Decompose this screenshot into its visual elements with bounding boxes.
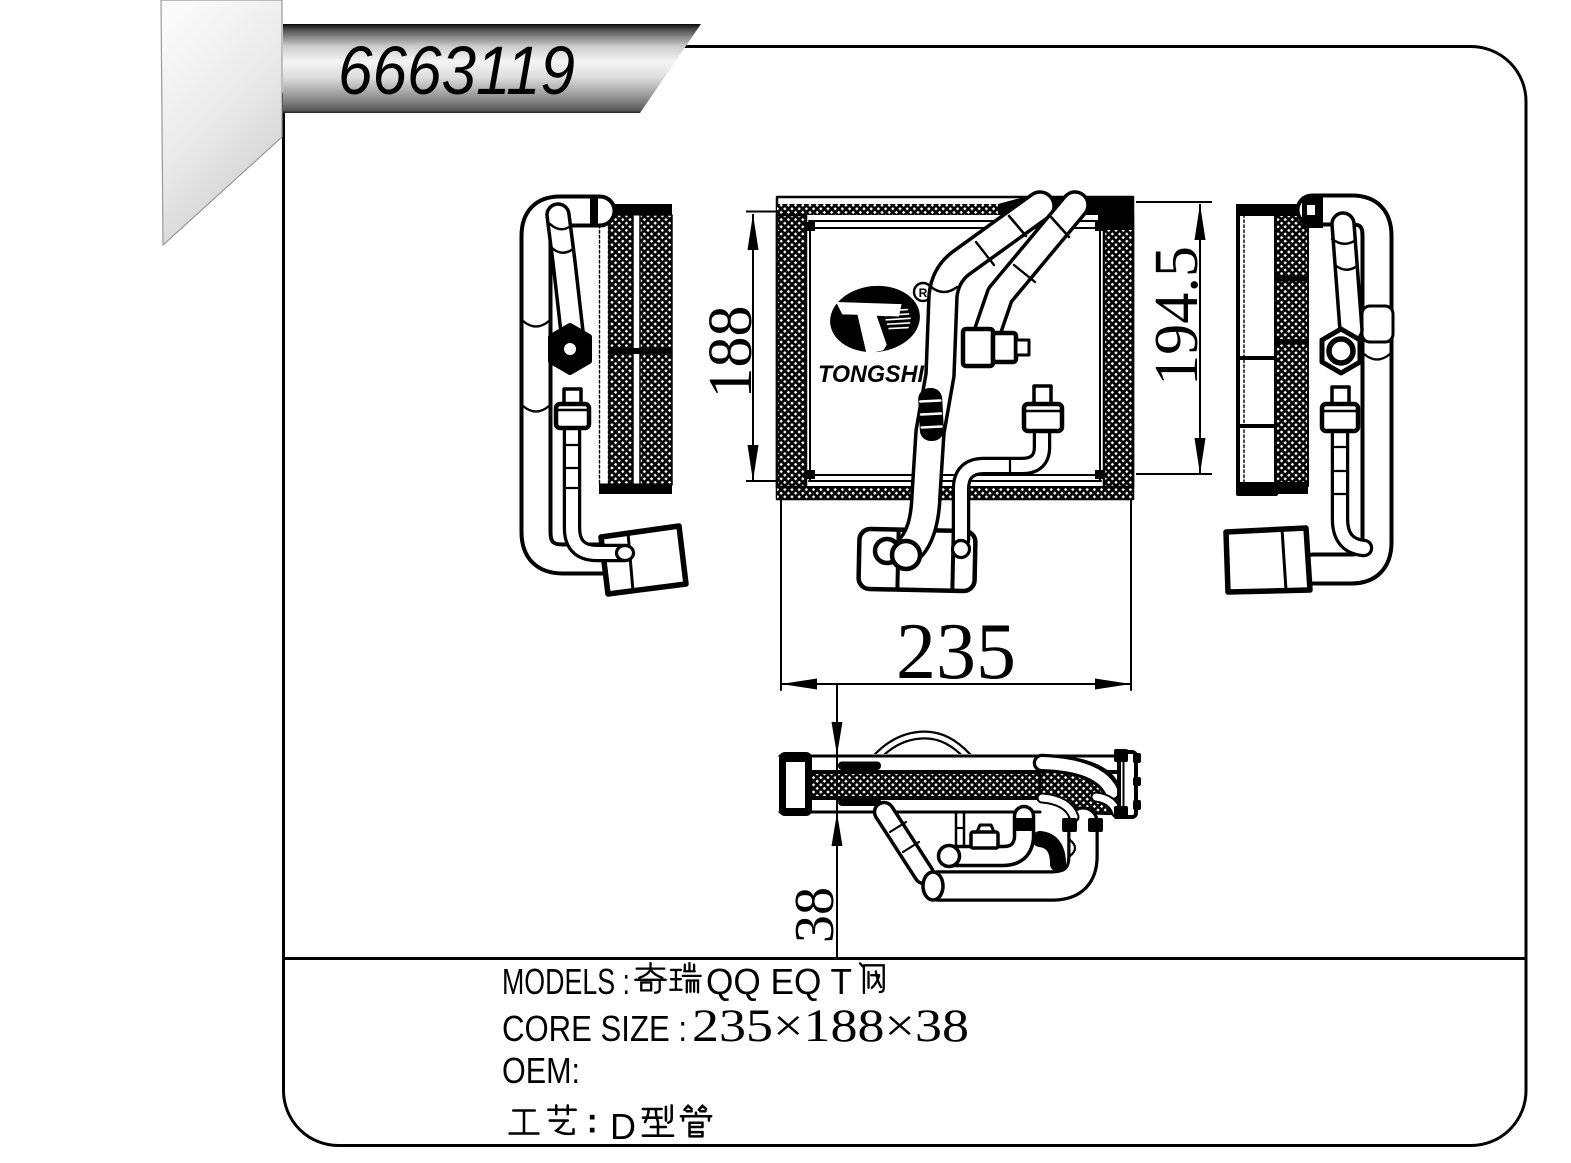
svg-text:188: 188 bbox=[697, 306, 765, 399]
svg-text:OEM:: OEM: bbox=[502, 1050, 580, 1091]
svg-text:194.5: 194.5 bbox=[1143, 246, 1211, 386]
svg-text:235×188×38: 235×188×38 bbox=[692, 1000, 969, 1052]
svg-text:MODELS :: MODELS : bbox=[502, 961, 630, 1002]
svg-text:38: 38 bbox=[784, 887, 846, 943]
svg-text:D: D bbox=[610, 1106, 636, 1147]
svg-text:TONGSHI: TONGSHI bbox=[818, 361, 925, 388]
svg-text:CORE SIZE :: CORE SIZE : bbox=[502, 1008, 687, 1049]
svg-text:235: 235 bbox=[896, 608, 1016, 696]
svg-text:6663119: 6663119 bbox=[338, 32, 575, 109]
svg-text:QQ EQ T: QQ EQ T bbox=[706, 961, 852, 1002]
svg-text:R: R bbox=[919, 286, 928, 300]
